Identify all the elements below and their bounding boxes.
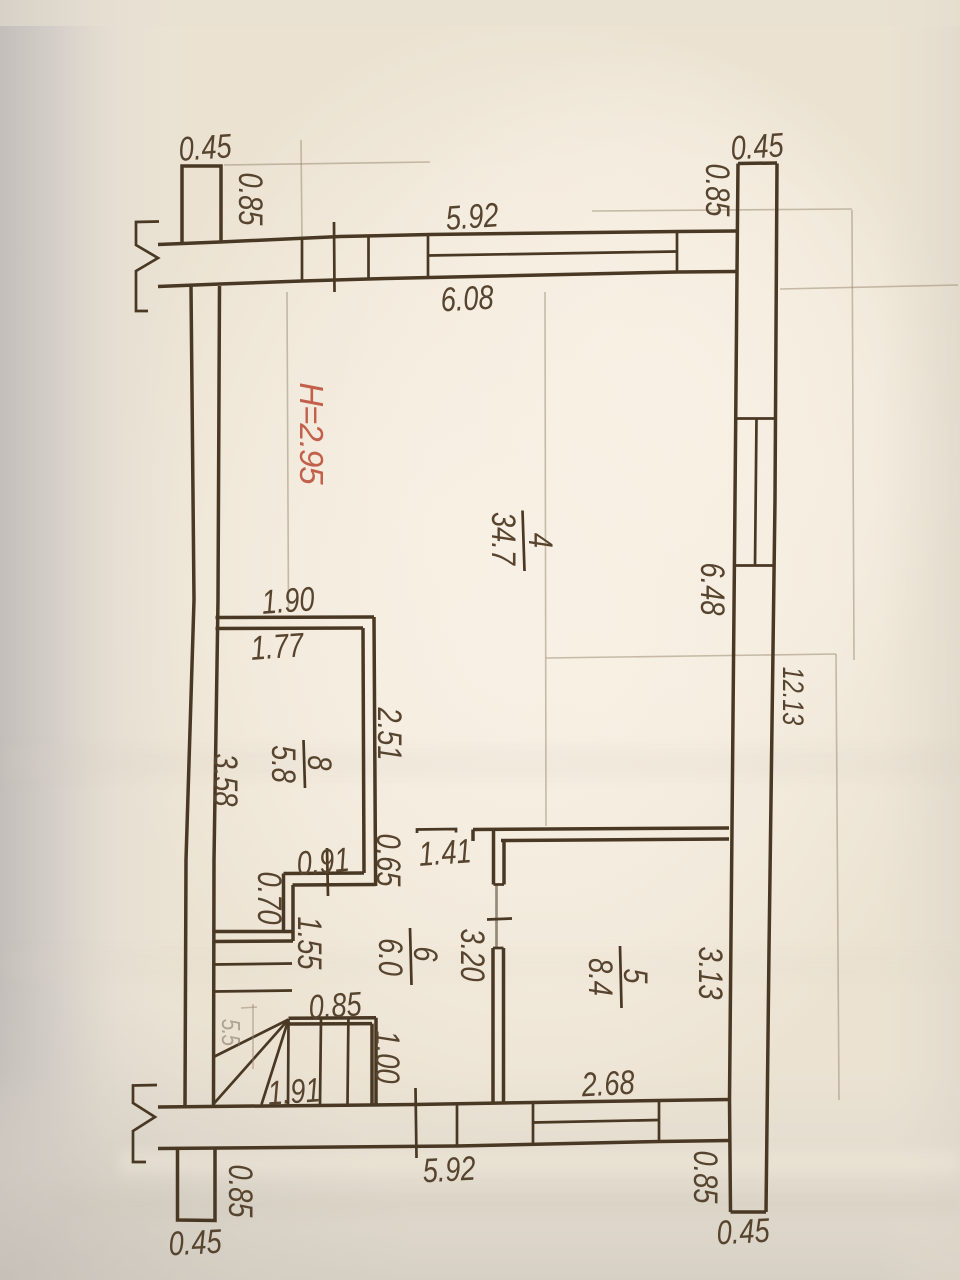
svg-text:8: 8 (300, 755, 339, 770)
svg-text:0.85: 0.85 (231, 173, 270, 227)
svg-text:3.20: 3.20 (453, 929, 492, 982)
svg-text:3.13: 3.13 (691, 947, 730, 1000)
svg-text:1.91: 1.91 (266, 1070, 321, 1112)
svg-text:2.51: 2.51 (370, 707, 409, 761)
svg-text:0.85: 0.85 (686, 1151, 725, 1205)
svg-text:5: 5 (616, 968, 655, 984)
svg-text:5.8: 5.8 (264, 745, 303, 783)
svg-text:6: 6 (406, 946, 445, 962)
svg-text:0.45: 0.45 (177, 126, 233, 168)
svg-text:6.48: 6.48 (693, 563, 732, 616)
svg-text:6.08: 6.08 (440, 278, 495, 319)
svg-text:5.92: 5.92 (422, 1149, 477, 1190)
svg-text:34.7: 34.7 (484, 512, 523, 567)
svg-text:3.58: 3.58 (206, 754, 245, 807)
svg-text:0.45: 0.45 (716, 1211, 772, 1252)
svg-text:6.0: 6.0 (371, 938, 410, 976)
svg-text:12.13: 12.13 (776, 667, 809, 726)
svg-text:0.45: 0.45 (168, 1222, 224, 1263)
svg-text:5.5: 5.5 (216, 1019, 245, 1047)
svg-text:1.55: 1.55 (290, 917, 329, 971)
svg-text:2.68: 2.68 (580, 1063, 636, 1104)
svg-text:0.91: 0.91 (295, 840, 351, 883)
svg-text:1.90: 1.90 (260, 579, 315, 621)
svg-text:0.85: 0.85 (307, 984, 363, 1026)
svg-text:0.70: 0.70 (250, 872, 289, 925)
svg-text:0.45: 0.45 (729, 125, 785, 167)
svg-text:8.4: 8.4 (581, 958, 620, 996)
svg-text:1.77: 1.77 (249, 625, 306, 667)
svg-text:4: 4 (521, 533, 560, 548)
svg-text:1.41: 1.41 (417, 831, 472, 873)
svg-text:0.85: 0.85 (698, 164, 737, 218)
svg-text:5.92: 5.92 (444, 195, 499, 237)
svg-text:0.85: 0.85 (221, 1165, 260, 1219)
svg-text:0.65: 0.65 (369, 834, 408, 888)
svg-text:Н=2.95: Н=2.95 (293, 382, 330, 485)
svg-text:1.00: 1.00 (368, 1031, 407, 1084)
